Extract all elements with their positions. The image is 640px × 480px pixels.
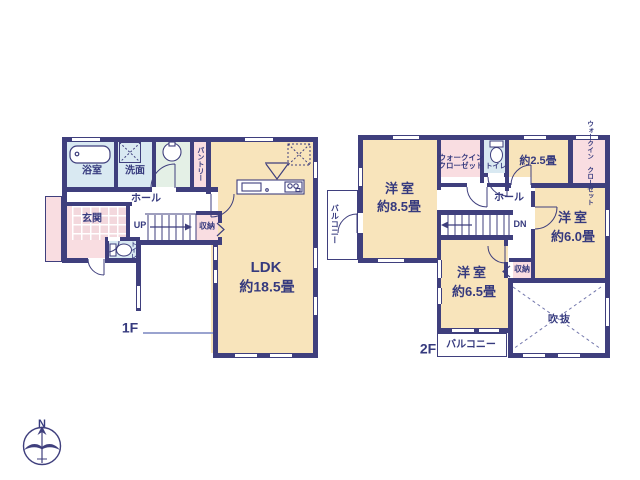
- label-washroom: 洗面: [125, 166, 145, 177]
- label-balcony-left: バルコニー: [330, 204, 339, 244]
- label-floor-1f: 1F: [122, 320, 138, 335]
- wash-basin-icon: [163, 142, 181, 161]
- label-storage-2f: 収納: [514, 266, 530, 275]
- label-hall-1f: ホール: [131, 194, 161, 205]
- label-bedroom60-size: 約6.0畳: [551, 230, 595, 244]
- kitchen-counter-icon: [237, 180, 304, 194]
- doors-1f: [88, 164, 234, 275]
- washing-machine-icon: [120, 143, 141, 163]
- label-bedroom60-name: 洋室: [558, 211, 590, 225]
- range-hood-icon: [265, 163, 289, 179]
- plan-graphics: [0, 0, 640, 480]
- toilet-2f-icon: [490, 141, 503, 163]
- storage-2f-door-mark: [503, 266, 510, 277]
- label-bedroom65-name: 洋室: [457, 266, 489, 280]
- label-wic-right-line2: クローゼット: [586, 167, 593, 206]
- label-wic-left-line2: クローゼット: [439, 162, 484, 170]
- label-toilet-1f: トイレ: [129, 241, 136, 259]
- label-compass-north: N: [38, 418, 46, 430]
- label-ldk-size: 約18.5畳: [239, 279, 294, 294]
- label-pantry: パントリー: [196, 147, 204, 182]
- stairs-2f: [448, 213, 509, 240]
- label-storage-1f: 収納: [199, 223, 215, 232]
- label-bath: 浴室: [82, 166, 102, 177]
- label-room25-size: 約2.5畳: [519, 155, 556, 167]
- label-hall-2f: ホール: [494, 193, 524, 204]
- stairs-down-arrow: [441, 222, 448, 229]
- label-balcony-bottom: バルコニー: [446, 340, 496, 351]
- label-floor-2f: 2F: [420, 341, 436, 356]
- bathtub-icon: [70, 146, 110, 163]
- label-toilet-2f: トイレ: [486, 163, 507, 171]
- label-up: UP: [134, 221, 147, 231]
- refrigerator-icon: [288, 144, 310, 165]
- label-entrance: 玄関: [82, 214, 102, 225]
- label-wic-right: ウォークイン クローゼット: [585, 121, 592, 206]
- label-dn: DN: [514, 220, 527, 230]
- label-bedroom85-size: 約8.5畳: [377, 200, 421, 214]
- label-void: 吹抜: [548, 315, 572, 326]
- floor-plan: 浴室 洗面 パントリー ホール UP 収納 玄関 トイレ LDK 約18.5畳 …: [0, 0, 640, 480]
- storage-1f-door-mark: [217, 223, 224, 236]
- stairs-up-arrow: [185, 224, 192, 231]
- label-bedroom65-size: 約6.5畳: [452, 285, 496, 299]
- label-ldk-name: LDK: [251, 260, 282, 277]
- label-wic-left: ウォークイン クローゼット: [439, 154, 484, 171]
- label-bedroom85-name: 洋室: [385, 182, 417, 196]
- compass-icon: [24, 426, 61, 465]
- doors-2f: [338, 165, 557, 263]
- label-wic-right-line1: ウォークイン: [586, 121, 593, 160]
